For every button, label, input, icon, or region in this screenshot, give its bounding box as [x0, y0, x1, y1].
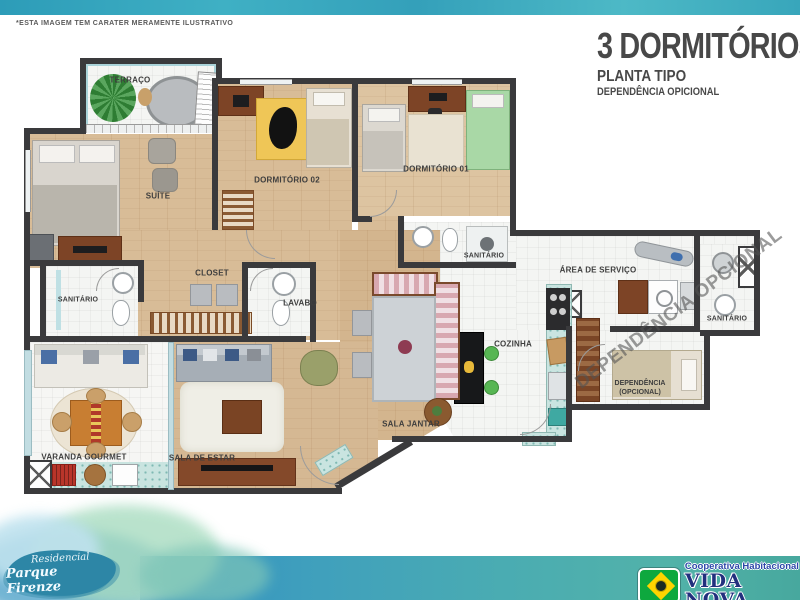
- label-sala-estar: SALA DE ESTAR: [169, 454, 235, 463]
- window: [240, 79, 292, 85]
- label-area-servico: ÁREA DE SERVIÇO: [560, 266, 637, 275]
- tv: [73, 246, 107, 253]
- dorm02-bed: [306, 88, 352, 168]
- dorm01-rug: [408, 114, 464, 168]
- dorm02-rug: [256, 98, 310, 160]
- label-dormitorio-02: DORMITÓRIO 02: [254, 176, 320, 185]
- pillow: [183, 349, 197, 361]
- laptop: [233, 95, 249, 107]
- pillow: [203, 349, 217, 361]
- pillow: [681, 359, 697, 391]
- label-sala-jantar: SALA JANTAR: [382, 420, 440, 429]
- sanitario-dorm-sink: [412, 226, 434, 248]
- suite-bed: [32, 140, 120, 246]
- wall-segment: [352, 84, 358, 216]
- lavabo-sink: [272, 272, 296, 296]
- closet-rack: [150, 312, 252, 334]
- dorm02-wardrobe: [222, 190, 254, 230]
- wall-segment: [24, 488, 342, 494]
- terrace-sill: [86, 124, 216, 133]
- burner: [550, 308, 557, 315]
- table-runner: [91, 401, 101, 443]
- window: [25, 150, 31, 212]
- burner: [550, 294, 557, 301]
- rattan-chair: [52, 412, 72, 432]
- dining-chair: [352, 310, 372, 336]
- wall-segment: [566, 404, 710, 410]
- label-dependencia-line2: (OPCIONAL): [615, 388, 666, 397]
- terrace-chair: [138, 88, 152, 106]
- page-title: 3 DORMITÓRIOS: [597, 28, 800, 64]
- brochure-page: *ESTA IMAGEM TEM CARATER MERAMENTE ILUST…: [0, 0, 800, 600]
- pillow: [225, 349, 239, 361]
- pillow: [123, 350, 139, 364]
- disclaimer-text: *ESTA IMAGEM TEM CARATER MERAMENTE ILUST…: [16, 20, 233, 27]
- flower-centerpiece: [398, 340, 412, 354]
- wall-segment: [516, 230, 760, 236]
- wall-segment: [242, 262, 316, 268]
- pillow: [472, 94, 504, 108]
- fruit-bowl: [464, 361, 474, 373]
- label-dependencia-line1: DEPENDÊNCIA: [615, 379, 666, 388]
- wood-board: [84, 464, 106, 486]
- suite-armchair: [148, 138, 176, 164]
- wall-segment: [398, 262, 516, 268]
- pillow: [247, 349, 261, 361]
- blanket: [307, 119, 349, 165]
- title-block: 3 DORMITÓRIOS PLANTA TIPO DEPENDÊNCIA OP…: [597, 28, 800, 98]
- label-varanda-gourmet: VARANDA GOURMET: [41, 453, 126, 462]
- grill: [52, 464, 76, 486]
- top-watercolor-band: [0, 0, 800, 15]
- dorm01-bed: [362, 104, 406, 172]
- pillow: [39, 145, 75, 163]
- glass-partition: [168, 342, 174, 490]
- empreendimento-name: Parque Firenze: [6, 561, 117, 597]
- gourmet-sink: [112, 464, 138, 486]
- dorm01-bed-green: [466, 90, 510, 170]
- vida-nova-logo: Cooperativa Habitacional VIDA NOVA: [640, 562, 800, 600]
- burner: [559, 294, 566, 301]
- page-option-line: DEPENDÊNCIA OPICIONAL: [597, 86, 800, 98]
- wall-segment: [80, 58, 222, 64]
- sofa: [176, 344, 272, 382]
- sanitario-dorm-toilet: [442, 228, 458, 252]
- wall-segment: [704, 330, 710, 410]
- dining-bench-cushions: [372, 272, 438, 296]
- label-sanitario-dormitorios: SANITÁRIO: [464, 253, 504, 260]
- label-dependencia: DEPENDÊNCIA (OPCIONAL): [615, 379, 666, 397]
- sanitario-suite-toilet: [112, 300, 130, 326]
- varanda-table: [70, 400, 122, 446]
- pillow: [83, 350, 99, 364]
- kitchen-appliance: [548, 408, 568, 426]
- cooperativa-name: VIDA NOVA: [685, 572, 800, 600]
- plant: [432, 406, 442, 416]
- accent-armchair: [300, 350, 338, 386]
- blanket: [363, 131, 403, 169]
- wall-segment: [24, 128, 86, 134]
- wall-segment: [24, 336, 306, 342]
- wall-segment: [212, 84, 218, 230]
- pillow: [41, 350, 57, 364]
- label-terraco: TERRAÇO: [110, 76, 151, 85]
- wall-segment: [242, 262, 248, 342]
- flag-globe: [655, 580, 667, 592]
- varanda-sofa: [34, 344, 148, 388]
- wall-segment: [40, 260, 46, 342]
- label-lavabo: LAVABO: [283, 299, 317, 308]
- iron: [670, 252, 683, 262]
- wall-segment: [80, 58, 86, 132]
- laundry-cabinet: [618, 280, 648, 314]
- wall-segment: [392, 436, 572, 442]
- desk-items: [429, 93, 447, 101]
- rattan-chair: [86, 388, 106, 404]
- label-cozinha: COZINHA: [494, 340, 532, 349]
- wall-segment: [138, 260, 144, 302]
- label-dormitorio-01: DORMITÓRIO 01: [403, 165, 469, 174]
- coffee-table: [222, 400, 262, 434]
- rattan-chair: [122, 412, 142, 432]
- dining-chair: [352, 352, 372, 378]
- wall-segment: [352, 216, 372, 222]
- pillow: [368, 108, 400, 122]
- label-sanitario-dependencia: SANITÁRIO: [707, 316, 747, 323]
- kitchen-stool: [484, 380, 499, 395]
- label-closet: CLOSET: [195, 269, 229, 278]
- shower-drain: [480, 237, 494, 251]
- pillow: [313, 92, 345, 106]
- rug-pattern: [269, 107, 297, 149]
- vida-nova-flag-icon: [640, 570, 678, 600]
- sanitario-dep-sink: [714, 294, 736, 316]
- stove: [546, 288, 570, 330]
- closet-stool: [190, 284, 212, 306]
- wall-segment: [398, 216, 404, 268]
- label-sanitario-suite: SANITÁRIO: [58, 297, 98, 304]
- wall-segment: [510, 78, 516, 236]
- logo-text: Cooperativa Habitacional VIDA NOVA: [685, 562, 800, 600]
- dining-table: [372, 296, 436, 402]
- varanda-window: [24, 350, 32, 456]
- window: [412, 79, 462, 85]
- suite-armchair: [152, 168, 178, 192]
- wall-segment: [566, 326, 572, 442]
- page-subtitle: PLANTA TIPO: [597, 68, 800, 86]
- dining-bench-cushions: [434, 282, 460, 400]
- pillow: [79, 145, 115, 163]
- label-suite: SUÍTE: [146, 192, 171, 201]
- watercolor-blob: [140, 545, 270, 600]
- tv: [201, 465, 273, 471]
- burner: [559, 308, 566, 315]
- closet-stool: [216, 284, 238, 306]
